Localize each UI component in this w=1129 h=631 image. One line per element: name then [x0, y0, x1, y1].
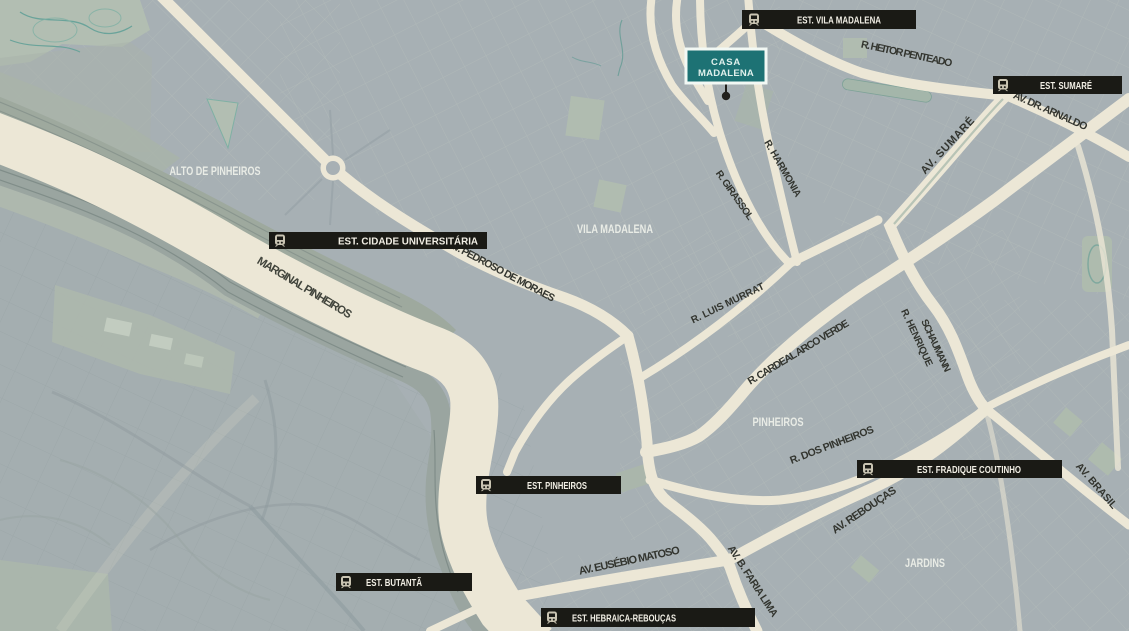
svg-text:VILA MADALENA: VILA MADALENA [577, 222, 653, 236]
svg-text:EST. HEBRAICA-REBOUÇAS: EST. HEBRAICA-REBOUÇAS [572, 612, 676, 624]
svg-text:PINHEIROS: PINHEIROS [753, 415, 804, 429]
svg-text:EST. VILA MADALENA: EST. VILA MADALENA [797, 14, 881, 26]
svg-text:EST. SUMARÉ: EST. SUMARÉ [1040, 79, 1092, 92]
svg-text:EST. BUTANTÃ: EST. BUTANTÃ [366, 576, 422, 589]
svg-text:EST. CIDADE UNIVERSITÁRIA: EST. CIDADE UNIVERSITÁRIA [338, 234, 478, 247]
svg-text:EST. FRADIQUE COUTINHO: EST. FRADIQUE COUTINHO [917, 464, 1021, 476]
svg-text:ALTO DE PINHEIROS: ALTO DE PINHEIROS [170, 164, 261, 178]
svg-text:JARDINS: JARDINS [905, 556, 945, 570]
svg-text:MADALENA: MADALENA [698, 68, 754, 79]
svg-text:CASA: CASA [711, 57, 741, 68]
svg-text:EST. PINHEIROS: EST. PINHEIROS [527, 480, 587, 492]
